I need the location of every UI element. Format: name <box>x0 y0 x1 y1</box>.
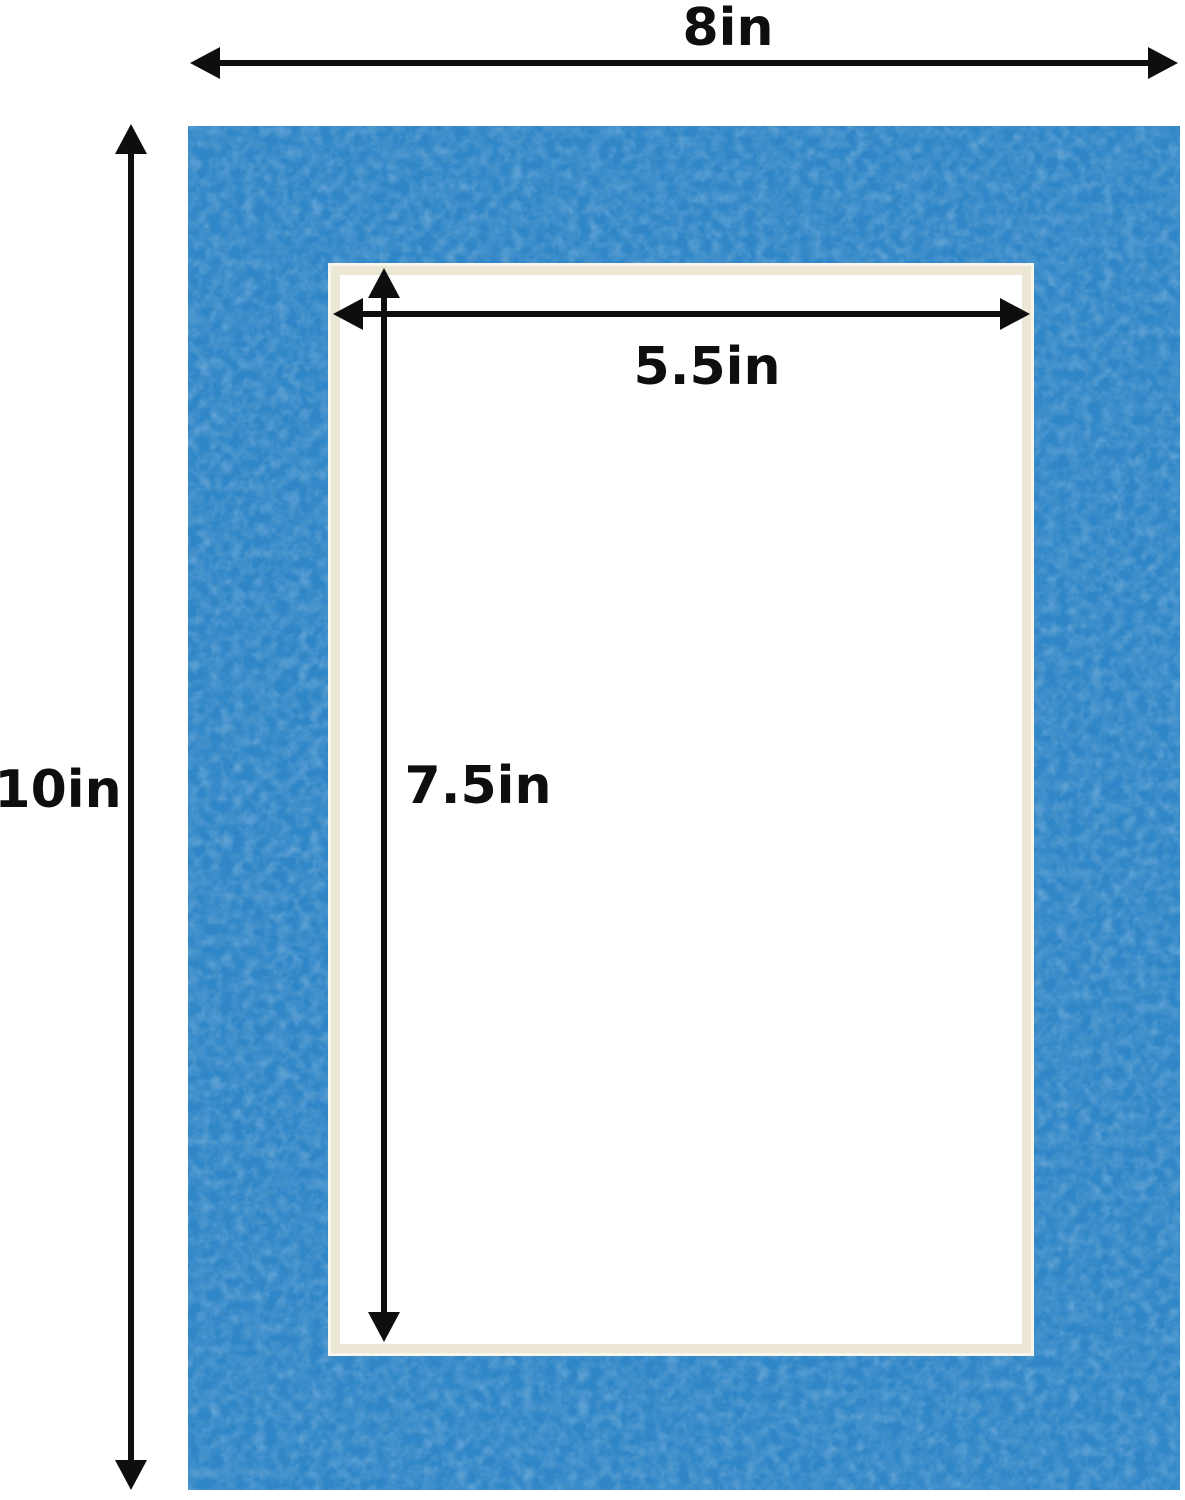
opening-height-arrowhead-top-icon <box>368 268 400 298</box>
outer-width-arrowhead-left-icon <box>190 47 220 79</box>
outer-width-label: 8in <box>682 2 773 54</box>
opening-width-arrowhead-right-icon <box>1000 298 1030 330</box>
opening-height-arrow-line <box>381 292 387 1318</box>
opening-height-arrowhead-bottom-icon <box>368 1312 400 1342</box>
outer-height-arrowhead-top-icon <box>115 124 147 154</box>
opening-width-arrowhead-left-icon <box>333 298 363 330</box>
opening-width-label: 5.5in <box>634 341 781 393</box>
opening-height-label: 7.5in <box>405 760 552 812</box>
outer-width-arrowhead-right-icon <box>1148 47 1178 79</box>
opening-width-arrow-line <box>357 311 1007 317</box>
outer-height-arrowhead-bottom-icon <box>115 1460 147 1490</box>
outer-height-arrow-line <box>128 148 134 1466</box>
outer-height-label: 10in <box>0 764 122 816</box>
diagram-canvas: 8in 10in 5.5in 7.5in <box>0 0 1185 1500</box>
outer-width-arrow-line <box>214 60 1164 66</box>
